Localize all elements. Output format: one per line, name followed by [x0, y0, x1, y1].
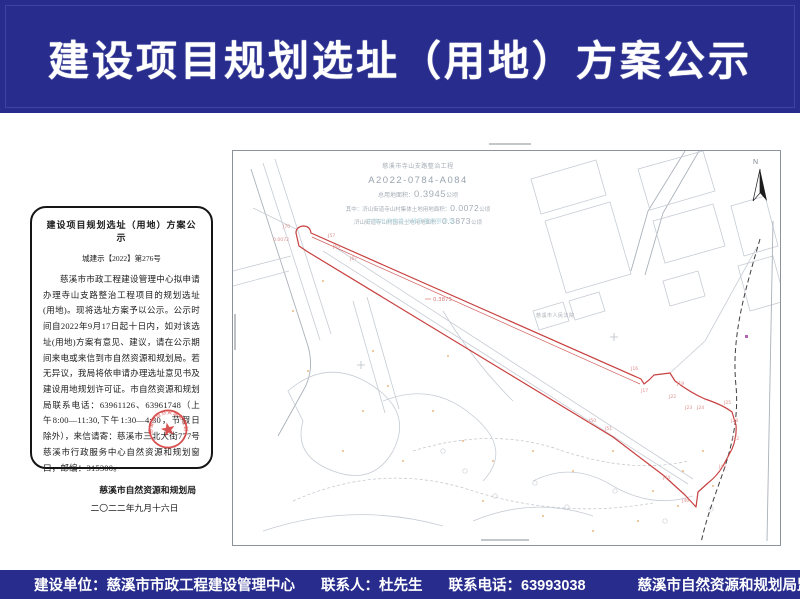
survey-point-label: 0.0072	[273, 237, 289, 243]
survey-point-label: J23	[684, 405, 692, 411]
survey-point-label: J70	[282, 224, 290, 230]
boundary-node	[745, 335, 748, 338]
footer-band: 建设单位：慈溪市市政工程建设管理中心 联系人：杜先生 联系电话：63993038…	[0, 570, 800, 599]
map-scale-annotation	[481, 539, 529, 541]
public-notice-poster: 建设项目规划选址（用地）方案公示 建设项目规划选址（用地）方案公示 城建示【20…	[0, 0, 800, 599]
seal-star-icon	[160, 421, 176, 437]
survey-point-label: J57	[327, 233, 335, 239]
footer-builder: 建设单位：慈溪市市政工程建设管理中心	[34, 574, 295, 595]
survey-point-label: J24	[696, 405, 704, 411]
notice-date: 二〇二二年九月十六日	[43, 501, 200, 514]
official-seal: 慈溪市自然资源和规划局	[143, 404, 193, 454]
survey-point-label: J64	[332, 244, 340, 250]
survey-point-label: J17	[640, 388, 648, 394]
parcel-area-label: 0.3873	[433, 297, 452, 303]
building-label-court: 慈溪市人民法院	[536, 312, 575, 319]
footer-supervisor: 慈溪市自然资源和规划局监制	[638, 574, 800, 595]
survey-point-label: J44	[662, 475, 670, 481]
cad-boundary	[701, 221, 773, 543]
surveyor-watermark: 宁波市测绘设计研究院有限公司	[367, 217, 455, 225]
map-area-sub1: 其中：浒山街道寺山村集体土地用地面积：0.0072公顷	[303, 202, 533, 215]
survey-point-label: J51	[604, 426, 612, 432]
map-project-number: A2022-0784-A084	[303, 174, 533, 188]
survey-point-label: J16	[630, 366, 638, 372]
map-edge-annotation	[234, 314, 236, 350]
red-parcel-outline: 0.3873	[296, 226, 736, 507]
survey-point-label: J25	[723, 400, 731, 406]
survey-point-label: J19	[676, 381, 684, 387]
header-band: 建设项目规划选址（用地）方案公示	[0, 0, 800, 113]
notice-title: 建设项目规划选址（用地）方案公示	[43, 218, 200, 244]
survey-point-label: J43	[718, 464, 726, 470]
survey-point-label: J42	[731, 436, 739, 442]
footer-phone: 联系电话：63993038	[449, 574, 586, 595]
survey-point-labels: J700.0072J57J64J67J16J17J19J22J23J24J25J…	[273, 224, 739, 504]
north-letter: N	[753, 159, 758, 166]
survey-point-label: J67	[349, 256, 357, 262]
notice-doc-number: 城建示【2022】第276号	[43, 253, 200, 264]
footer-contact: 联系人：杜先生	[321, 574, 423, 595]
survey-point-label: J46	[681, 498, 689, 504]
survey-point-label: J22	[668, 394, 676, 400]
site-plan-map: 0.3873 J700.0072J57J64J67J16J17J19J22J23…	[232, 150, 781, 546]
map-area-total: 总用地面积：0.3945公顷	[303, 188, 533, 202]
poster-title: 建设项目规划选址（用地）方案公示	[48, 27, 752, 87]
survey-point-label: J28	[730, 418, 738, 424]
map-project-name: 慈溪市寺山支路整治工程	[303, 163, 533, 172]
survey-point-label: J50	[588, 418, 596, 424]
map-edge-annotation	[489, 143, 531, 145]
notice-signature: 慈溪市自然资源和规划局	[43, 483, 200, 496]
cad-park-paths	[263, 311, 713, 531]
north-arrow-icon	[753, 169, 767, 201]
